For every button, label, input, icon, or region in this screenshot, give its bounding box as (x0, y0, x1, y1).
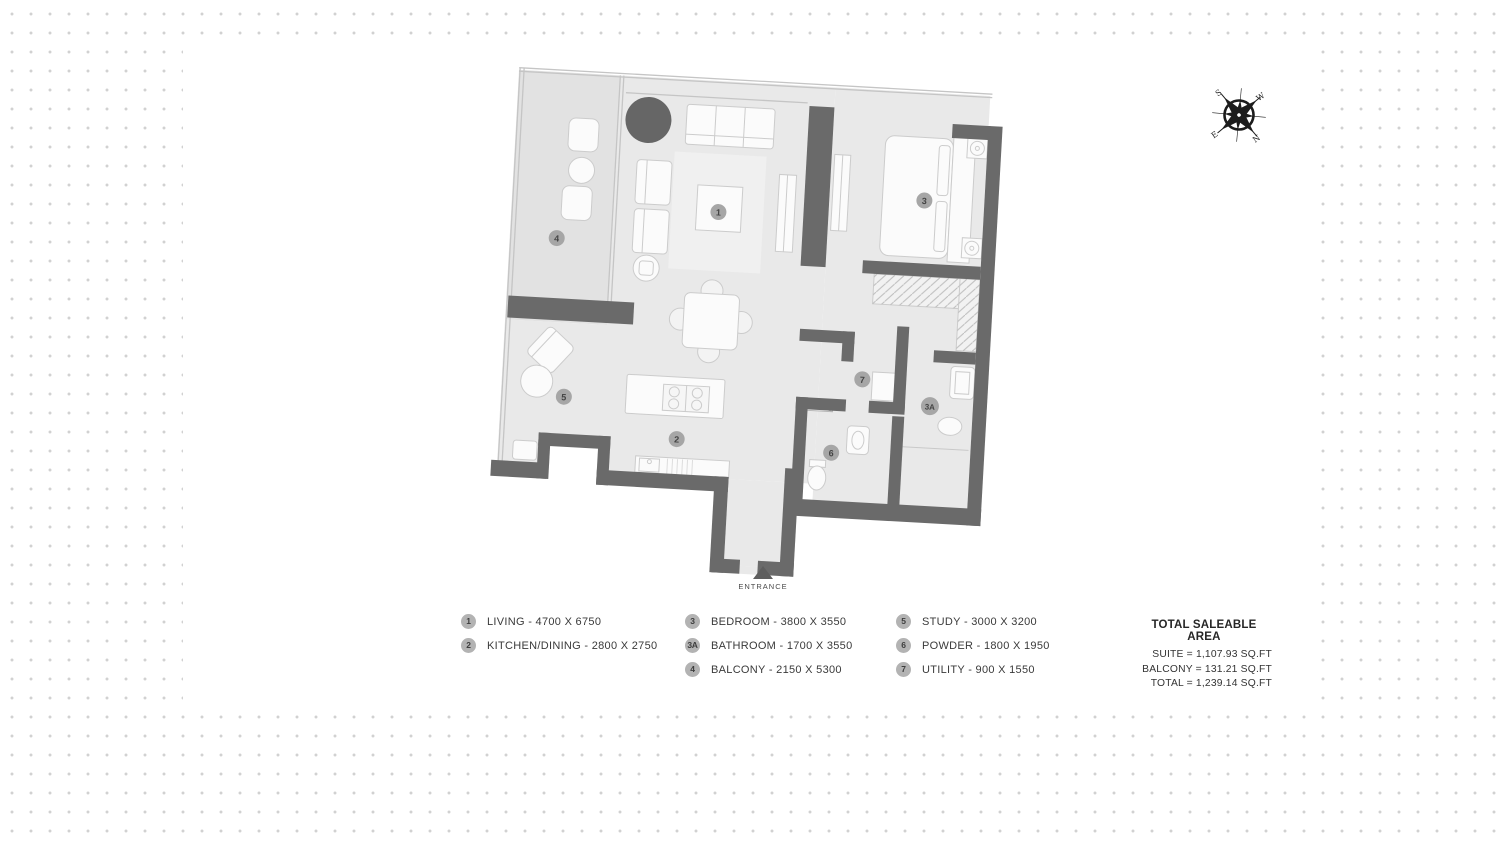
compass-n: N (1251, 133, 1262, 144)
svg-text:7: 7 (859, 375, 865, 385)
legend-label-utility: UTILITY - 900 X 1550 (922, 664, 1035, 676)
legend-num-1: 1 (461, 614, 476, 629)
legend-item-kitchen-dining: 2 KITCHEN/DINING - 2800 X 2750 (461, 638, 657, 653)
legend-num-3a: 3A (685, 638, 700, 653)
sofa (685, 104, 775, 149)
legend-label-balcony: BALCONY - 2150 X 5300 (711, 664, 842, 676)
entrance-label: ENTRANCE (738, 582, 787, 591)
svg-text:6: 6 (828, 448, 834, 458)
compass-rose-icon: S W N E (1203, 79, 1275, 151)
kitchen-island (625, 374, 725, 418)
legend-num-2: 2 (461, 638, 476, 653)
legend-label-study: STUDY - 3000 X 3200 (922, 616, 1037, 628)
legend-num-6: 6 (896, 638, 911, 653)
svg-text:2: 2 (674, 434, 680, 444)
legend-num-5: 5 (896, 614, 911, 629)
legend-item-bathroom: 3A BATHROOM - 1700 X 3550 (685, 638, 853, 653)
legend-item-study: 5 STUDY - 3000 X 3200 (896, 614, 1050, 629)
total-area-suite: SUITE = 1,107.93 SQ.FT (1136, 648, 1272, 663)
svg-text:3A: 3A (925, 402, 936, 412)
compass-w: W (1255, 90, 1268, 103)
total-area-balcony: BALCONY = 131.21 SQ.FT (1136, 663, 1272, 678)
legend-item-utility: 7 UTILITY - 900 X 1550 (896, 662, 1050, 677)
legend-item-living: 1 LIVING - 4700 X 6750 (461, 614, 657, 629)
legend-column-1: 1 LIVING - 4700 X 6750 2 KITCHEN/DINING … (461, 614, 657, 653)
total-saleable-area: TOTAL SALEABLE AREA SUITE = 1,107.93 SQ.… (1136, 619, 1272, 692)
legend-item-bedroom: 3 BEDROOM - 3800 X 3550 (685, 614, 853, 629)
svg-text:4: 4 (554, 233, 560, 243)
floor-plan: 1 2 3 3A 4 5 6 (0, 0, 1500, 842)
legend-item-powder: 6 POWDER - 1800 X 1950 (896, 638, 1050, 653)
tv-shelf (775, 174, 796, 252)
legend-column-2: 3 BEDROOM - 3800 X 3550 3A BATHROOM - 17… (685, 614, 853, 677)
total-area-lines: SUITE = 1,107.93 SQ.FT BALCONY = 131.21 … (1136, 648, 1272, 692)
legend-num-4: 4 (685, 662, 700, 677)
legend-label-living: LIVING - 4700 X 6750 (487, 616, 601, 628)
legend-label-powder: POWDER - 1800 X 1950 (922, 640, 1050, 652)
total-area-title: TOTAL SALEABLE AREA (1136, 619, 1272, 643)
legend-column-3: 5 STUDY - 3000 X 3200 6 POWDER - 1800 X … (896, 614, 1050, 677)
svg-text:5: 5 (561, 392, 567, 402)
svg-text:3: 3 (922, 196, 928, 206)
legend-num-3: 3 (685, 614, 700, 629)
compass-e: E (1210, 130, 1220, 141)
utility-counter (871, 372, 897, 401)
total-area-total: TOTAL = 1,239.14 SQ.FT (1136, 677, 1272, 692)
legend-num-7: 7 (896, 662, 911, 677)
svg-text:1: 1 (716, 207, 722, 217)
legend-label-bedroom: BEDROOM - 3800 X 3550 (711, 616, 846, 628)
legend-label-bathroom: BATHROOM - 1700 X 3550 (711, 640, 853, 652)
entrance-arrow-icon (753, 566, 773, 579)
compass-s: S (1214, 88, 1224, 99)
legend-item-balcony: 4 BALCONY - 2150 X 5300 (685, 662, 853, 677)
legend-label-kitchen-dining: KITCHEN/DINING - 2800 X 2750 (487, 640, 657, 652)
